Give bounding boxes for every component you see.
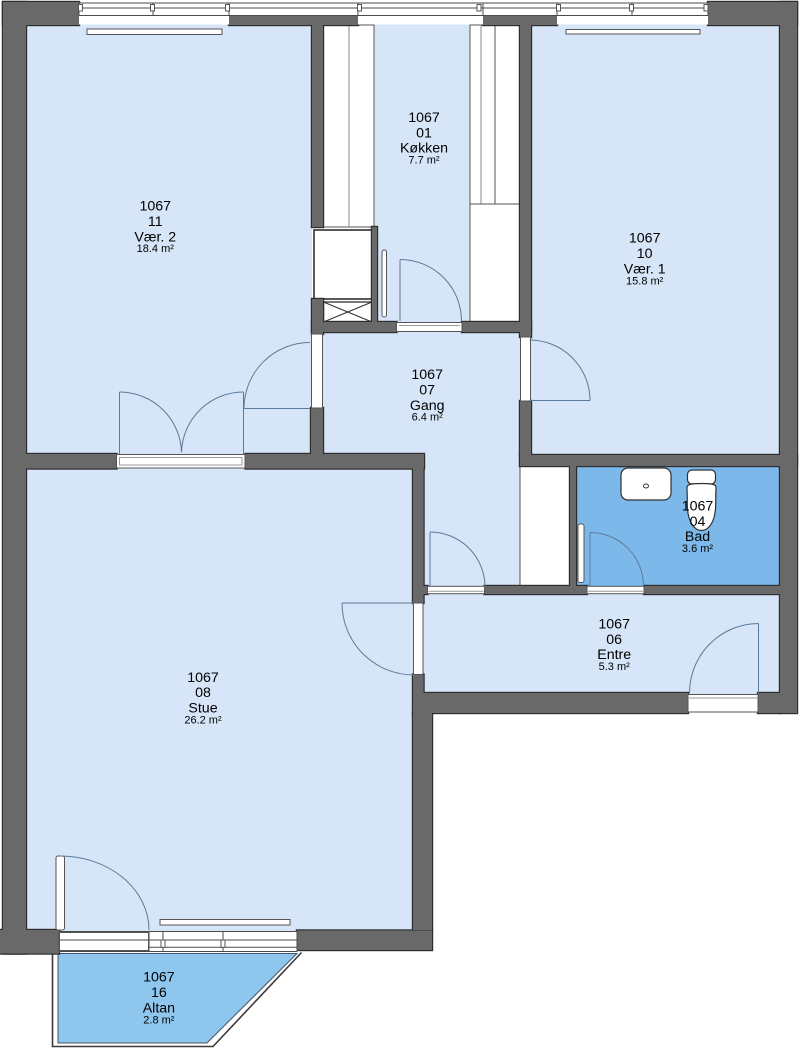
svg-text:1067: 1067 (408, 110, 440, 126)
svg-text:3.6 m²: 3.6 m² (682, 543, 714, 555)
svg-text:2.8 m²: 2.8 m² (143, 1014, 175, 1026)
svg-text:16: 16 (151, 985, 167, 1001)
svg-text:1067: 1067 (682, 498, 714, 514)
svg-text:15.8 m²: 15.8 m² (626, 275, 664, 287)
svg-text:11: 11 (148, 214, 163, 230)
svg-text:1067: 1067 (598, 616, 630, 632)
svg-text:06: 06 (606, 632, 622, 648)
svg-text:08: 08 (195, 685, 211, 701)
svg-text:1067: 1067 (411, 367, 443, 383)
svg-text:07: 07 (419, 382, 435, 398)
svg-text:1067: 1067 (140, 199, 172, 215)
svg-text:1067: 1067 (187, 670, 219, 686)
svg-text:7.7 m²: 7.7 m² (408, 155, 440, 167)
svg-text:26.2 m²: 26.2 m² (184, 714, 222, 726)
svg-text:6.4 m²: 6.4 m² (412, 412, 444, 424)
svg-text:5.3 m²: 5.3 m² (599, 661, 631, 673)
svg-text:01: 01 (416, 125, 432, 141)
svg-text:1067: 1067 (629, 231, 661, 247)
svg-text:1067: 1067 (143, 970, 175, 986)
svg-text:18.4 m²: 18.4 m² (137, 243, 175, 255)
svg-text:10: 10 (637, 246, 653, 262)
svg-text:04: 04 (690, 514, 706, 530)
